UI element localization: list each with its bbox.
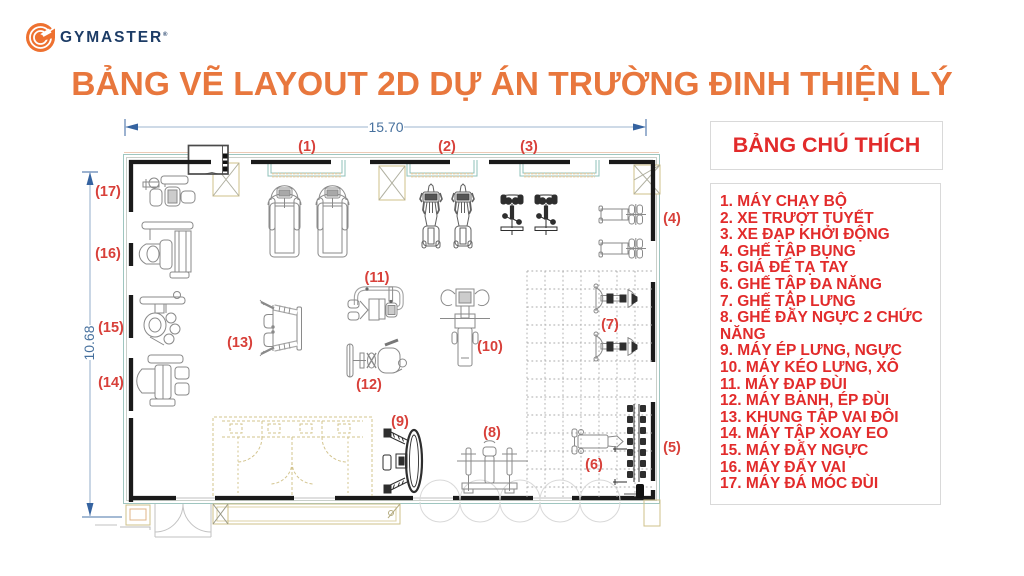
svg-text:(11): (11)	[365, 270, 390, 286]
svg-text:(16): (16)	[95, 246, 121, 262]
svg-text:(9): (9)	[391, 414, 409, 430]
svg-text:(17): (17)	[95, 184, 121, 200]
svg-text:(7): (7)	[601, 317, 619, 333]
svg-text:(10): (10)	[477, 339, 503, 355]
svg-text:(13): (13)	[227, 335, 253, 351]
svg-text:(12): (12)	[356, 377, 382, 393]
svg-text:(4): (4)	[663, 211, 681, 227]
svg-text:(14): (14)	[98, 375, 124, 391]
svg-text:10.68: 10.68	[81, 325, 97, 360]
svg-text:(2): (2)	[438, 139, 456, 155]
svg-text:(15): (15)	[98, 320, 124, 336]
svg-text:(3): (3)	[520, 139, 538, 155]
svg-text:(8): (8)	[483, 425, 501, 441]
svg-text:(1): (1)	[298, 139, 316, 155]
svg-text:(5): (5)	[663, 440, 681, 456]
svg-text:15.70: 15.70	[368, 119, 403, 135]
svg-text:(6): (6)	[585, 457, 603, 473]
